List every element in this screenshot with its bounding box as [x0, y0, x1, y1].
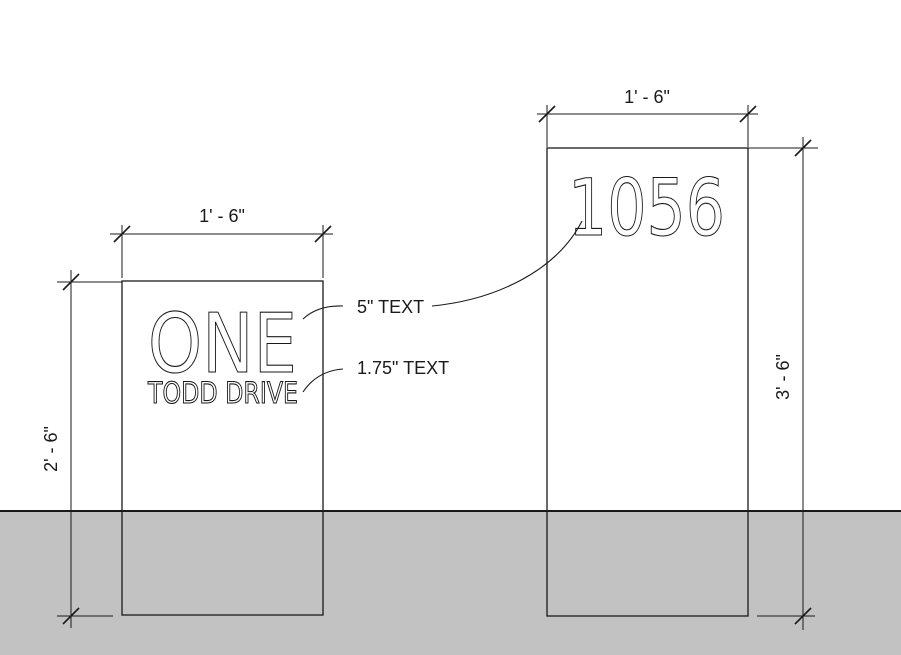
- ground: [0, 511, 901, 655]
- right-width-dimension: 1' - 6": [537, 87, 758, 147]
- sign-elevation-drawing: ONE TODD DRIVE 1056 1' - 6" 1' - 6": [0, 0, 901, 655]
- left-width-dim-text: 1' - 6": [199, 206, 245, 226]
- left-height-dim-text: 2' - 6": [41, 426, 61, 472]
- left-sign-line2: TODD DRIVE: [147, 376, 298, 410]
- note-large-text: 5" TEXT: [357, 297, 424, 317]
- right-height-dim-text: 3' - 6": [773, 354, 793, 400]
- left-width-dimension: 1' - 6": [110, 206, 333, 278]
- note-small-text: 1.75" TEXT: [357, 358, 449, 378]
- right-sign-number: 1056: [568, 164, 725, 254]
- drawing-svg: ONE TODD DRIVE 1056 1' - 6" 1' - 6": [0, 0, 901, 655]
- leader-large-text-right: [432, 221, 582, 306]
- right-width-dim-text: 1' - 6": [624, 87, 670, 107]
